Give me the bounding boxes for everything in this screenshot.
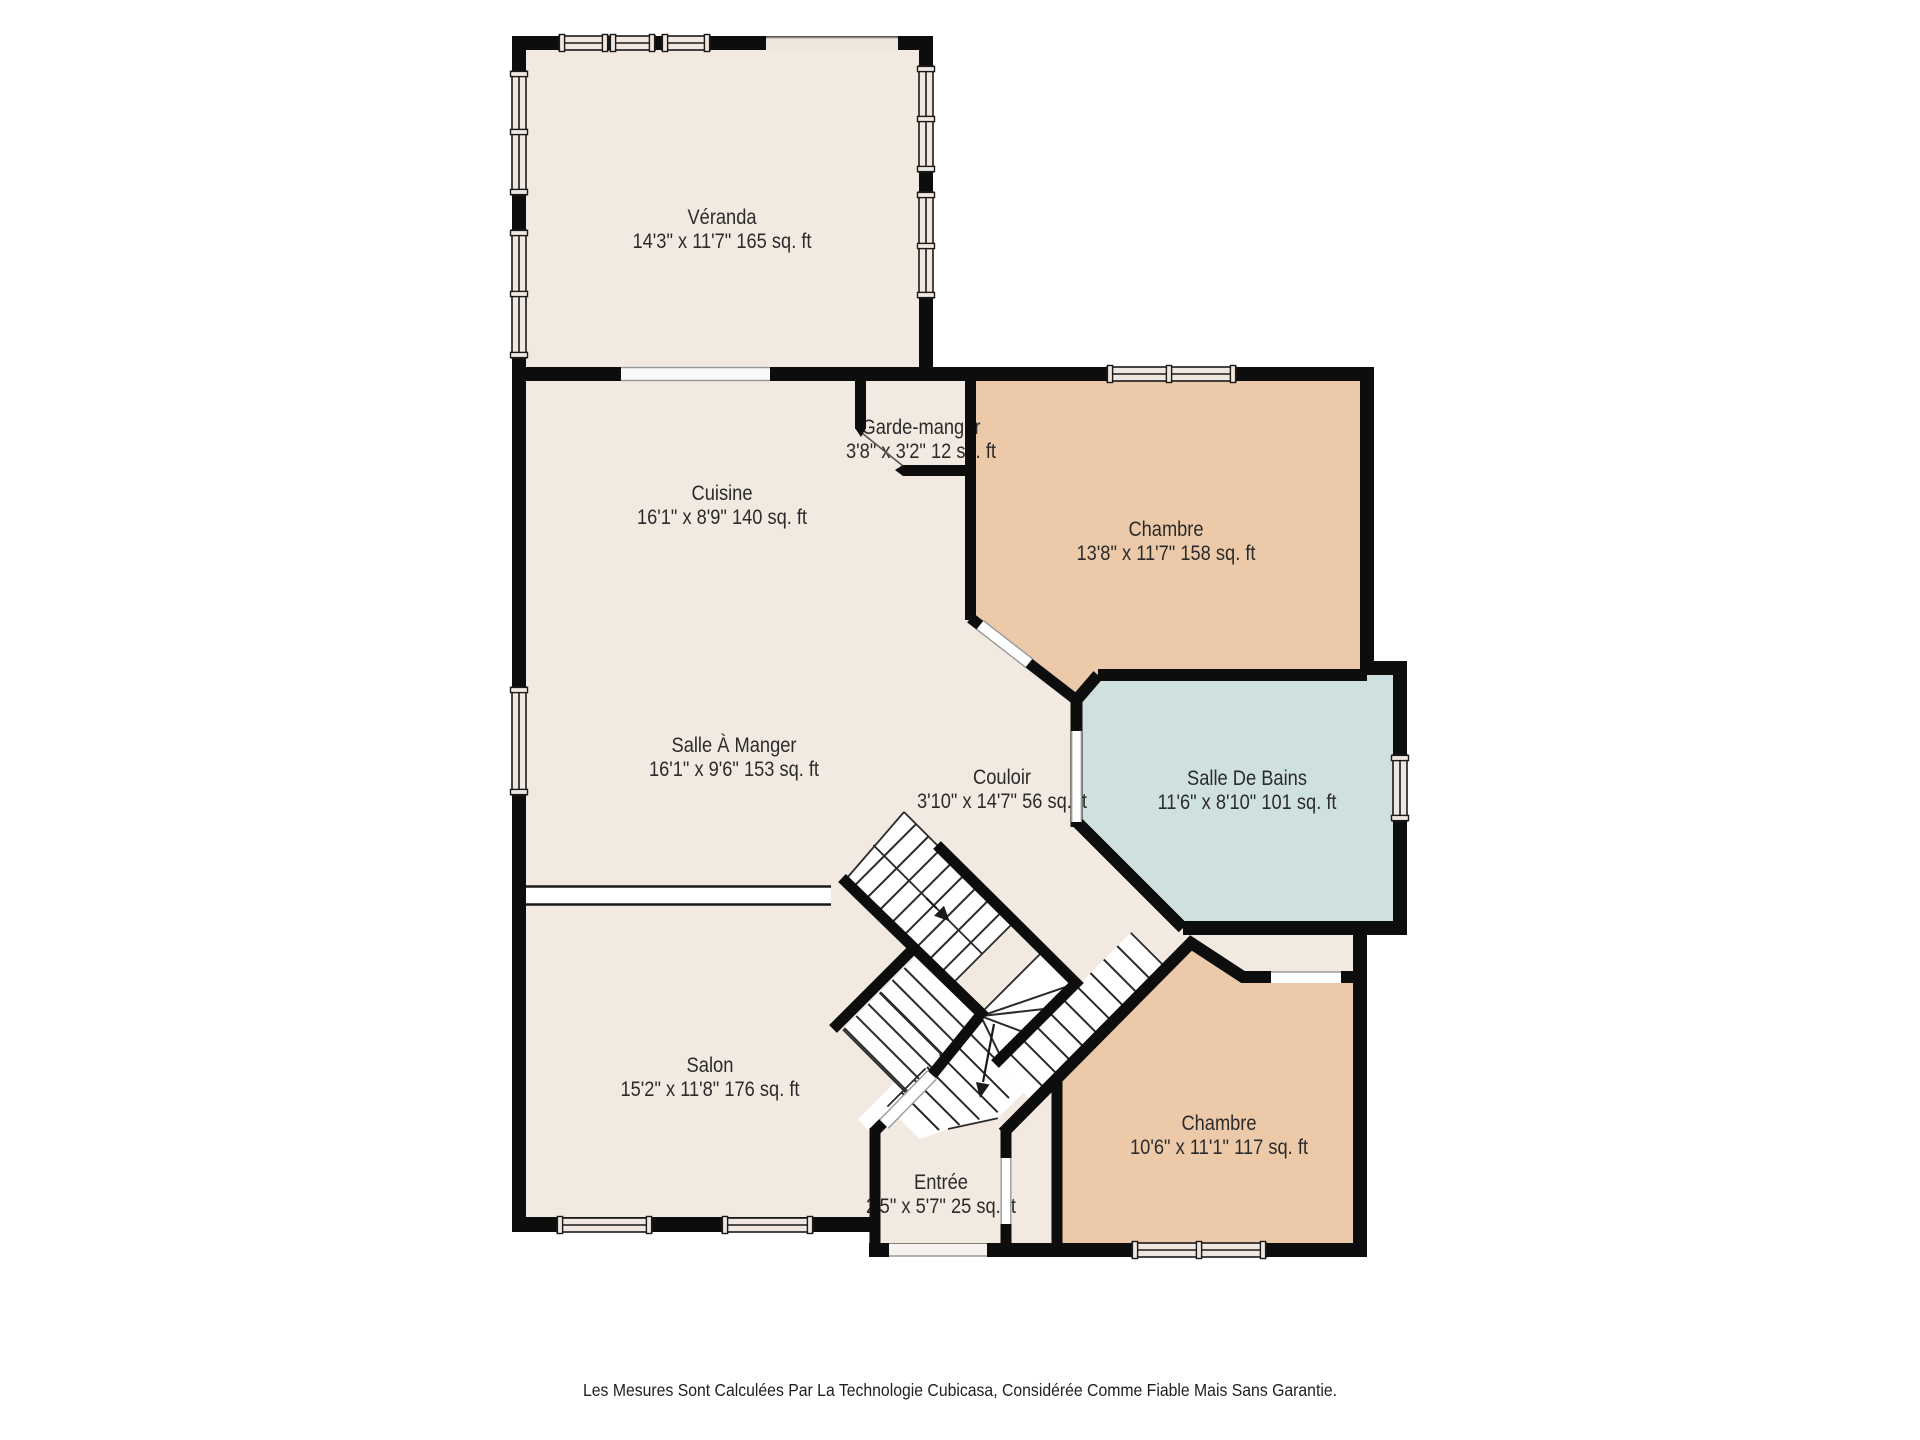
- svg-text:Cuisine: Cuisine: [692, 481, 753, 505]
- svg-text:Chambre: Chambre: [1129, 517, 1204, 541]
- svg-text:Chambre: Chambre: [1182, 1111, 1257, 1135]
- svg-text:2'5" x 5'7" 25 sq. ft: 2'5" x 5'7" 25 sq. ft: [866, 1194, 1016, 1218]
- svg-text:Couloir: Couloir: [973, 765, 1031, 789]
- svg-text:10'6" x 11'1" 117 sq. ft: 10'6" x 11'1" 117 sq. ft: [1130, 1135, 1308, 1159]
- svg-text:16'1" x 9'6" 153 sq. ft: 16'1" x 9'6" 153 sq. ft: [649, 757, 819, 781]
- svg-text:Véranda: Véranda: [688, 205, 757, 229]
- svg-text:3'10" x 14'7" 56 sq. ft: 3'10" x 14'7" 56 sq. ft: [917, 789, 1087, 813]
- svg-text:11'6" x 8'10" 101 sq. ft: 11'6" x 8'10" 101 sq. ft: [1158, 790, 1337, 814]
- svg-text:Les Mesures Sont Calculées Par: Les Mesures Sont Calculées Par La Techno…: [583, 1380, 1337, 1400]
- svg-text:16'1" x 8'9" 140 sq. ft: 16'1" x 8'9" 140 sq. ft: [637, 505, 807, 529]
- svg-text:14'3" x 11'7" 165 sq. ft: 14'3" x 11'7" 165 sq. ft: [633, 229, 812, 253]
- svg-text:Salle À Manger: Salle À Manger: [672, 732, 797, 757]
- svg-text:Garde-manger: Garde-manger: [862, 415, 981, 439]
- svg-text:15'2" x 11'8" 176 sq. ft: 15'2" x 11'8" 176 sq. ft: [621, 1077, 800, 1101]
- svg-text:Salon: Salon: [687, 1053, 734, 1077]
- svg-text:Salle De Bains: Salle De Bains: [1187, 766, 1307, 790]
- svg-text:Entrée: Entrée: [914, 1170, 968, 1194]
- svg-text:13'8" x 11'7" 158 sq. ft: 13'8" x 11'7" 158 sq. ft: [1077, 541, 1256, 565]
